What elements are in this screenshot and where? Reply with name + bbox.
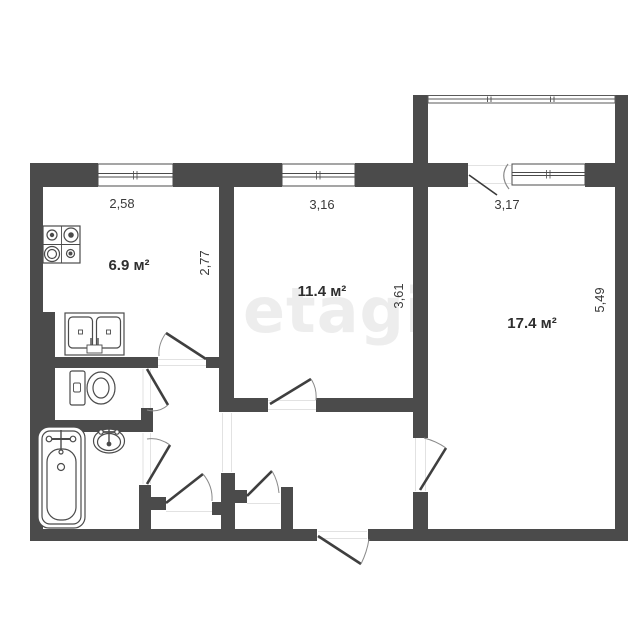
floor-plan: etagi [0,0,640,640]
wall-closet1-right-nub [212,502,223,515]
toilet-icon [70,371,115,405]
dim-room-large-height: 5,49 [592,287,607,312]
wall-balcony-left-stub [413,95,428,163]
leader-line [469,175,497,195]
wall-balcony-front-left [428,163,468,187]
wall-bath-right-stub [139,485,151,529]
dim-kitchen-width: 2,58 [109,196,134,211]
closet2-door [247,471,279,496]
wall-kitchen-bottom-1 [55,357,158,368]
wall-top-2 [173,163,282,187]
balcony-door-arc [504,164,509,189]
wall-divider-kitchen-room [219,187,234,412]
wall-top-1 [30,163,98,187]
dim-room-large-width: 3,17 [494,197,519,212]
doors [147,164,509,564]
closet1-door [166,474,212,503]
wall-left-shaft [43,312,55,432]
balcony-railing [428,96,615,104]
wall-top-3 [355,163,428,187]
wall-bottom-right [368,529,628,541]
wall-closet1-left-nub [151,497,166,510]
guide-lines [143,166,511,539]
kitchen-sink-icon [65,313,124,355]
area-room-large: 17.4 м² [507,315,556,332]
entrance-door [318,536,369,564]
area-kitchen: 6.9 м² [108,257,149,274]
wall-room11-bottom-2 [316,398,413,412]
kitchen-door [159,333,206,359]
dim-room-medium-width: 3,16 [309,197,334,212]
wall-hall-stub [281,487,293,529]
wall-kitchen-bottom-2 [206,357,234,368]
wall-room17-left-lower [413,492,428,529]
wall-divider-lower [221,473,235,529]
area-room-medium: 11.4 м² [298,283,347,300]
wall-balcony-front-right [585,163,615,187]
kitchen-window [98,164,173,186]
floor-plan-canvas: etagi [0,0,640,640]
wall-closet2-left-nub [235,490,247,503]
dim-room-medium-height: 3,61 [391,283,406,308]
room-large-door [420,438,446,490]
stove-icon [43,226,80,263]
wall-room17-left-upper [413,187,428,438]
wall-bottom-left [30,529,317,541]
dim-kitchen-height: 2,77 [197,250,212,275]
wall-room11-bottom-1 [221,398,268,412]
wall-right-outer [615,95,628,541]
balcony-window [512,164,585,185]
bathtub-icon [38,427,85,528]
windows [98,164,585,186]
room-medium-window [282,164,355,186]
